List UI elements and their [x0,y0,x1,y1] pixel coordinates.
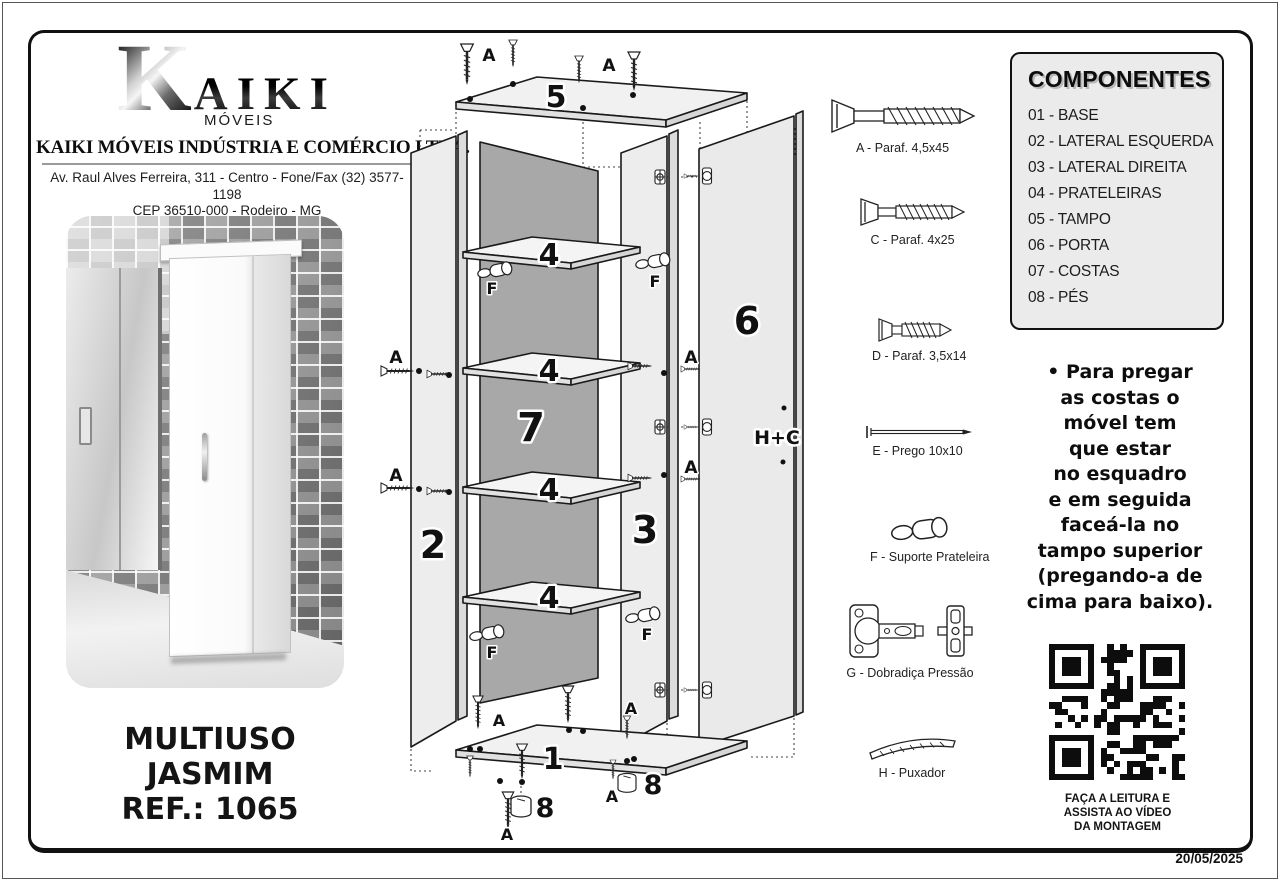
product-photo [66,216,344,688]
hardware-label: G - Dobradiça Pressão [845,666,975,680]
hardware-item-screw-c: C - Paraf. 4x25 [855,195,970,247]
screw-short-icon [876,315,958,345]
logo-aiki-letters: AIKI [194,74,337,114]
component-item: 02 - LATERAL ESQUERDA [1028,129,1222,155]
hardware-label: H - Puxador [862,766,962,780]
screw-long-icon [828,95,978,137]
photo-cabinet-body [169,254,291,657]
instruction-sheet: K AIKI MÓVEIS KAIKI MÓVEIS INDÚSTRIA E C… [0,0,1280,881]
print-date: 20/05/2025 [1143,851,1243,866]
hardware-label: C - Paraf. 4x25 [855,233,970,247]
hardware-item-hinge-g: G - Dobradiça Pressão [845,600,975,680]
product-title: MULTIUSO JASMIM REF.: 1065 [55,722,365,827]
logo-k-letter: K [117,42,192,114]
component-item: 03 - LATERAL DIREITA [1028,155,1222,181]
components-list: 01 - BASE 02 - LATERAL ESQUERDA 03 - LAT… [1028,103,1222,311]
component-item: 04 - PRATELEIRAS [1028,181,1222,207]
component-item: 07 - COSTAS [1028,259,1222,285]
press-hinge-icon [846,600,974,662]
qr-code [1049,644,1185,780]
qr-caption: FAÇA A LEITURA E ASSISTA AO VÍDEO DA MON… [1030,792,1205,834]
hardware-label: F - Suporte Prateleira [870,550,970,564]
photo-cabinet-door-edge [252,256,254,653]
screw-medium-icon [858,195,968,229]
component-item: 06 - PORTA [1028,233,1222,259]
address-line-1: Av. Raul Alves Ferreira, 311 - Centro - … [36,170,418,203]
photo-mirror-line [119,268,121,570]
components-title: COMPONENTES [1028,66,1222,93]
photo-mirror-door [66,268,162,570]
photo-cabinet [169,240,291,664]
nail-icon [862,424,974,440]
header: K AIKI MÓVEIS KAIKI MÓVEIS INDÚSTRIA E C… [36,36,418,236]
component-item: 05 - TAMPO [1028,207,1222,233]
components-box: COMPONENTES 01 - BASE 02 - LATERAL ESQUE… [1010,52,1224,330]
component-item: 08 - PÉS [1028,285,1222,311]
hardware-label: E - Prego 10x10 [860,444,975,458]
hardware-item-screw-d: D - Paraf. 3,5x14 [872,315,962,363]
company-name: KAIKI MÓVEIS INDÚSTRIA E COMÉRCIO LTDA. [36,137,418,159]
hardware-label: D - Paraf. 3,5x14 [872,349,962,363]
component-item: 01 - BASE [1028,103,1222,129]
handle-icon [864,730,960,762]
header-divider [42,163,412,165]
photo-cabinet-handle [202,433,207,481]
hardware-item-support-f: F - Suporte Prateleira [870,512,970,564]
assembly-note: • Para pregar as costas o móvel tem que … [1022,360,1218,615]
kaiki-logo: K AIKI [36,36,418,114]
shelf-support-icon [884,512,956,546]
photo-mirror-handle [79,407,92,445]
hardware-item-screw-a: A - Paraf. 4,5x45 [825,95,980,155]
hardware-label: A - Paraf. 4,5x45 [825,141,980,155]
hardware-item-nail-e: E - Prego 10x10 [860,424,975,458]
hardware-item-handle-h: H - Puxador [862,730,962,780]
